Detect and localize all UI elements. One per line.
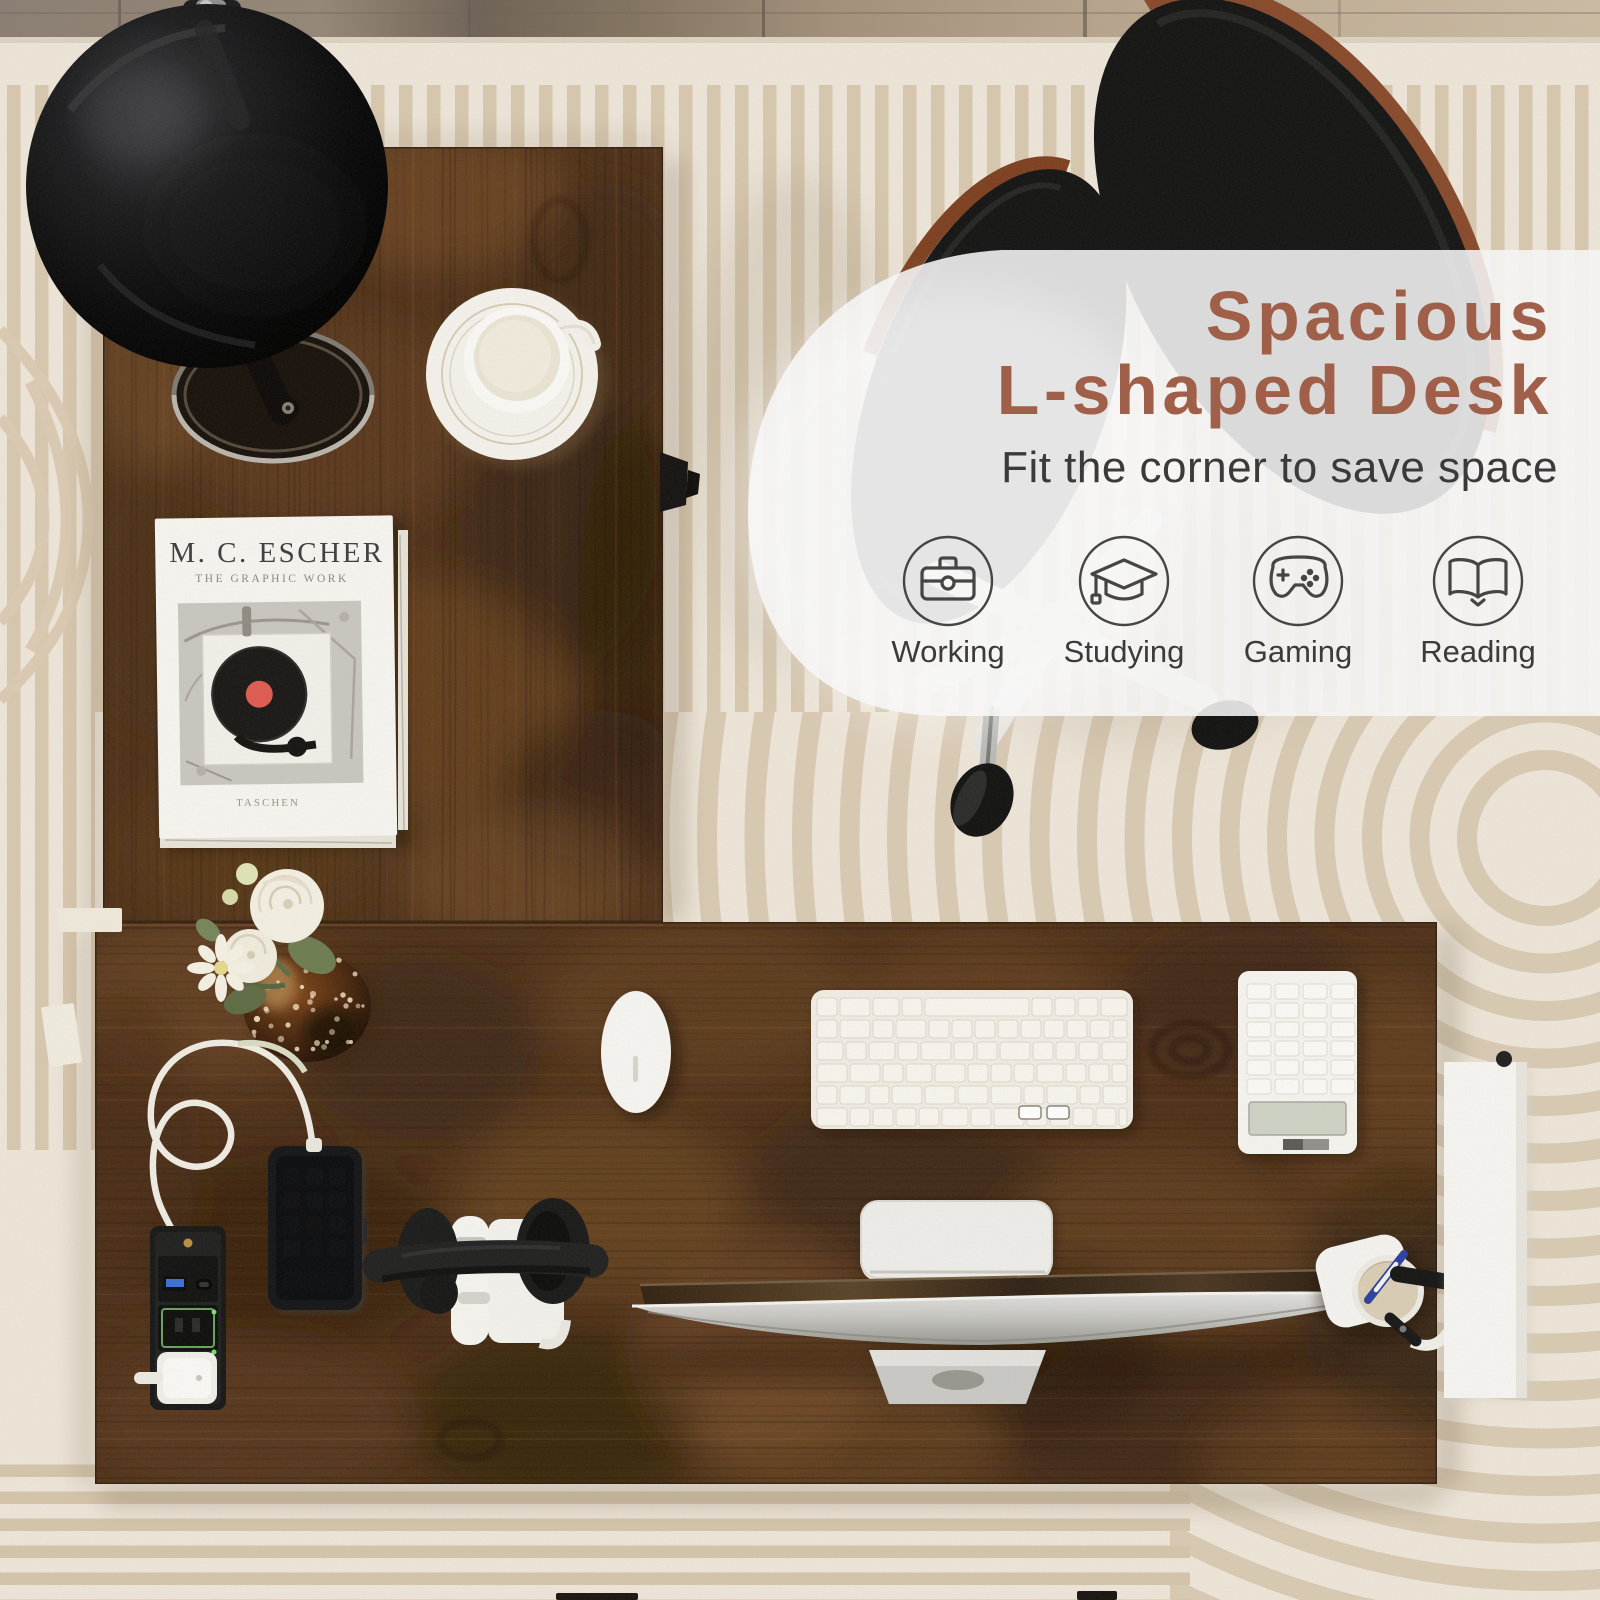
svg-text:Reading: Reading	[1420, 634, 1535, 669]
svg-text:Spacious: Spacious	[1206, 277, 1553, 355]
svg-text:Fit the corner to save space: Fit the corner to save space	[1001, 443, 1558, 492]
svg-text:Working: Working	[891, 634, 1004, 669]
svg-text:Studying: Studying	[1064, 634, 1185, 669]
svg-text:Gaming: Gaming	[1244, 634, 1353, 669]
svg-text:L-shaped Desk: L-shaped Desk	[997, 351, 1553, 429]
